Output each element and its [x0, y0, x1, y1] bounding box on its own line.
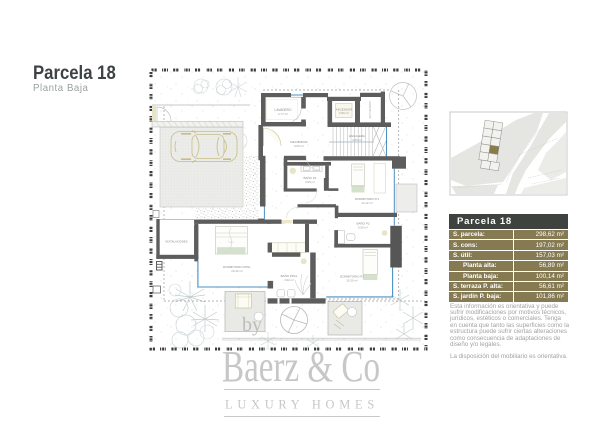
svg-text:Baerz & Co: Baerz & Co	[222, 342, 380, 391]
svg-text:by: by	[242, 314, 262, 336]
svg-text:4.65 m²: 4.65 m²	[305, 180, 315, 184]
svg-text:4.92 m²: 4.92 m²	[284, 278, 294, 282]
svg-text:4.77 m²: 4.77 m²	[278, 112, 288, 116]
svg-text:INSTALACIONES: INSTALACIONES	[165, 240, 187, 244]
svg-text:LUXURY HOMES: LUXURY HOMES	[225, 397, 379, 412]
svg-text:9.50 m²: 9.50 m²	[294, 144, 304, 148]
svg-text:5.09 m²: 5.09 m²	[358, 225, 368, 229]
svg-text:20.42 m²: 20.42 m²	[231, 269, 242, 273]
svg-text:14.12 m²: 14.12 m²	[361, 201, 372, 205]
svg-text:15.30 m²: 15.30 m²	[346, 278, 357, 282]
svg-text:ACS TECNICO: ACS TECNICO	[369, 101, 372, 118]
svg-text:4.80 m²: 4.80 m²	[352, 138, 362, 142]
svg-text:3.80 m²: 3.80 m²	[339, 111, 349, 115]
